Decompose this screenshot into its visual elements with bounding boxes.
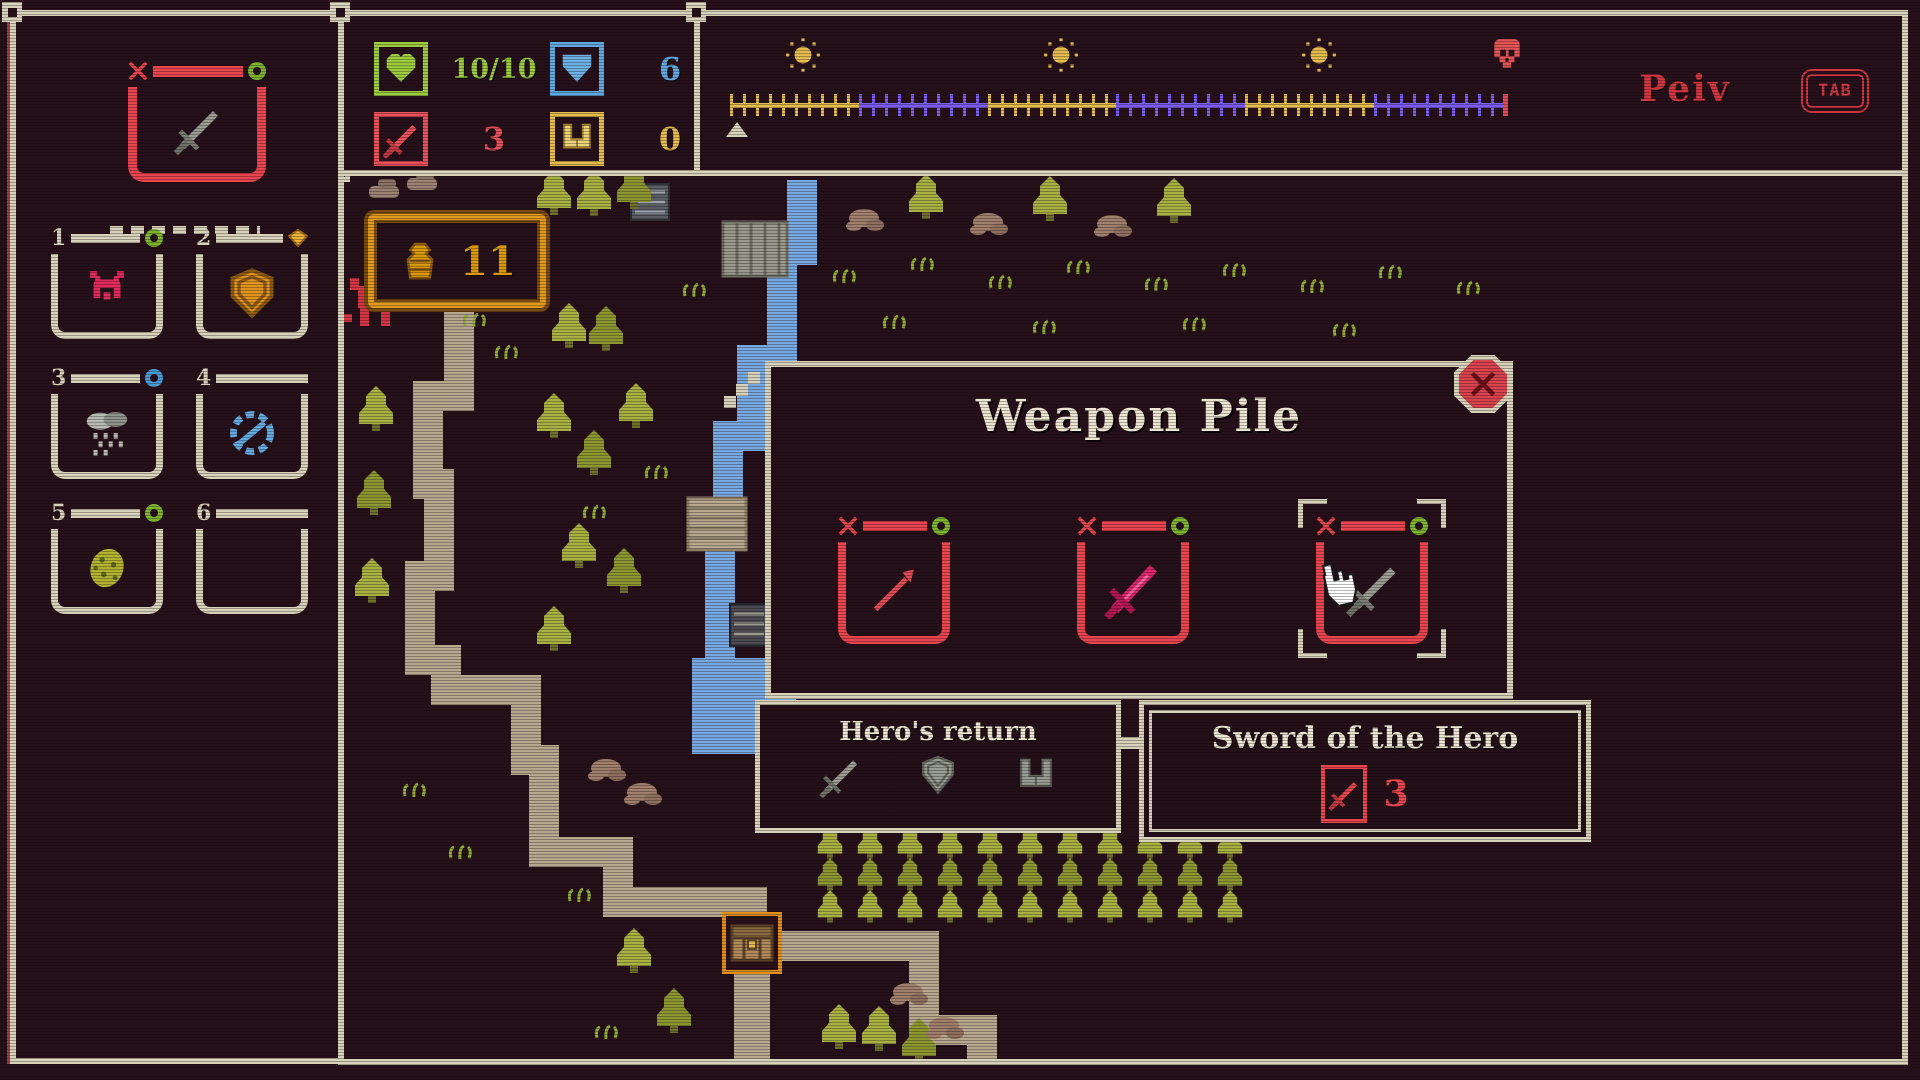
slot-number: 4	[196, 367, 211, 389]
tree-icon	[1058, 858, 1082, 890]
grey-sword-icon	[169, 102, 225, 158]
upgrade-ring-badge	[932, 517, 950, 535]
tree-icon	[1218, 858, 1242, 890]
chest-icon	[730, 922, 774, 964]
tree-icon	[1178, 890, 1202, 922]
boots-icon	[1013, 753, 1059, 803]
dock	[723, 222, 787, 276]
inventory-slot-5[interactable]: 5	[51, 502, 163, 614]
tree-icon	[357, 470, 391, 515]
dialog-corner-deco	[736, 384, 748, 396]
mushroom-icon	[970, 213, 1008, 235]
grass-icon	[1302, 280, 1322, 293]
timeline-position-marker	[726, 122, 748, 137]
slot-number: 3	[51, 367, 66, 389]
slot-bar	[71, 234, 140, 243]
shield-icon	[550, 42, 604, 96]
shield-icon	[915, 753, 961, 803]
tree-icon	[1178, 858, 1202, 890]
attack-stat-value: 3	[1383, 773, 1408, 815]
grass-icon	[1334, 324, 1354, 337]
tree-icon	[822, 1004, 856, 1049]
timeline-segment-day	[730, 94, 859, 116]
mushroom-icon	[588, 759, 626, 781]
mushroom-icon	[1094, 215, 1132, 237]
grass-icon	[646, 466, 666, 479]
slot-number: 5	[51, 502, 66, 524]
tree-icon	[858, 890, 882, 922]
tree-icon	[619, 383, 653, 428]
tree-icon	[1138, 858, 1162, 890]
upgrade-ring-badge	[145, 229, 163, 247]
stat-health: 10/10	[374, 42, 550, 96]
tree-icon	[1018, 890, 1042, 922]
player-name: Peiv	[1605, 68, 1765, 110]
attack-value: 3	[438, 120, 550, 158]
timeline-segment-night	[1374, 94, 1503, 116]
tree-icon	[938, 858, 962, 890]
stat-attack: 3	[374, 112, 550, 166]
timeline-end-tick	[1503, 94, 1508, 116]
dialog-corner-deco	[748, 372, 760, 384]
tree-icon	[562, 523, 596, 568]
slot-bar	[1102, 521, 1166, 531]
gem-badge-icon	[288, 229, 308, 247]
tree-icon	[577, 430, 611, 475]
sword-icon	[1321, 765, 1367, 823]
timeline-segment-night	[859, 94, 988, 116]
tree-icon	[355, 558, 389, 603]
money-bag-icon	[398, 239, 442, 283]
inventory-slot-2[interactable]: 2	[196, 227, 308, 339]
tree-icon	[359, 386, 393, 431]
tree-icon	[978, 890, 1002, 922]
treasure-chest[interactable]	[722, 912, 782, 974]
grass-icon	[1068, 261, 1088, 274]
slot-bar	[216, 234, 283, 243]
tooltip-sword-of-the-hero: Sword of the Hero 3	[1139, 700, 1591, 842]
tab-key-hint[interactable]: TAB	[1806, 74, 1864, 108]
tree-icon	[938, 890, 962, 922]
equipped-weapon-slot[interactable]	[128, 60, 266, 182]
inventory-slot-1[interactable]: 1	[51, 227, 163, 339]
upgrade-ring-badge	[248, 62, 266, 80]
tree-icon	[1033, 176, 1067, 221]
weapon-pile-slot-1[interactable]	[838, 515, 950, 644]
horned-helmet-icon	[80, 266, 134, 320]
tree-icon	[607, 548, 641, 593]
grass-icon	[1458, 282, 1478, 295]
tooltip-title: Hero's return	[760, 717, 1116, 747]
gold-count: 11	[460, 238, 516, 285]
rock-icon	[369, 179, 399, 198]
inventory-slot-3[interactable]: 3	[51, 367, 163, 479]
tree-icon	[537, 606, 571, 651]
empty-slot	[196, 529, 308, 614]
crossed-swords-icon	[1077, 516, 1097, 536]
boots-icon	[550, 112, 604, 166]
red-spear-icon	[865, 560, 923, 618]
moon-icon	[1171, 36, 1209, 74]
stairs	[688, 498, 746, 550]
grass-icon	[496, 346, 516, 359]
upgrade-ring-badge	[145, 504, 163, 522]
mushroom-icon	[624, 783, 662, 805]
tooltip-title: Sword of the Hero	[1144, 721, 1586, 756]
tree-icon	[1058, 890, 1082, 922]
grass-icon	[584, 506, 604, 519]
tooltip-heros-return: Hero's return	[755, 700, 1121, 833]
equipment-icon-row	[760, 753, 1116, 803]
tree-icon	[589, 306, 623, 351]
crossed-swords-icon	[128, 61, 148, 81]
stats-panel: 10/10 6 3 0	[338, 10, 700, 176]
crossed-swords-icon	[838, 516, 858, 536]
timeline-segment-day	[988, 94, 1117, 116]
dialog-title: Weapon Pile	[771, 391, 1507, 442]
timeline-segment-day	[1245, 94, 1374, 116]
tree-icon	[909, 176, 943, 219]
tree-icon	[617, 928, 651, 973]
upgrade-ring-badge	[1171, 517, 1189, 535]
tree-icon	[1018, 858, 1042, 890]
tree-icon	[577, 176, 611, 216]
slot-number: 2	[196, 227, 211, 249]
grass-icon	[450, 846, 470, 859]
signpost	[730, 604, 768, 646]
grass-icon	[834, 270, 854, 283]
tree-icon	[1098, 858, 1122, 890]
inventory-slot-4[interactable]: 4	[196, 367, 308, 479]
inventory-slot-6[interactable]: 6	[196, 502, 308, 614]
slot-bar	[71, 509, 140, 518]
grass-icon	[404, 784, 424, 797]
tree-icon	[1098, 890, 1122, 922]
tree-icon	[862, 1006, 896, 1051]
sidebar-panel: 1 2	[10, 10, 344, 1064]
tree-icon	[978, 858, 1002, 890]
timeline-segment-night	[1116, 94, 1245, 116]
tree-icon	[858, 858, 882, 890]
sword-icon	[817, 753, 863, 803]
compass-icon	[225, 406, 279, 460]
grass-icon	[596, 1026, 616, 1039]
weapon-pile-dialog: Weapon Pile	[765, 361, 1513, 699]
slot-number: 6	[196, 502, 211, 524]
tree-icon	[1157, 178, 1191, 223]
timeline-panel: Peiv TAB	[694, 10, 1908, 176]
grass-icon	[912, 258, 932, 271]
grass-icon	[684, 284, 704, 297]
sun-icon	[1300, 36, 1338, 74]
slot-bar	[216, 374, 308, 383]
slot-bar	[1341, 521, 1405, 531]
tree-icon	[657, 988, 691, 1033]
slot-bar	[71, 374, 140, 383]
slot-bar	[863, 521, 927, 531]
grass-icon	[1146, 278, 1166, 291]
game-screen: 11	[0, 0, 1920, 1080]
close-icon	[1459, 360, 1507, 408]
grass-icon	[1034, 321, 1054, 334]
grass-icon	[990, 276, 1010, 289]
grass-icon	[884, 316, 904, 329]
sword-icon	[374, 112, 428, 166]
tree-icon	[818, 890, 842, 922]
tree-icon	[898, 890, 922, 922]
grass-icon	[569, 889, 589, 902]
tree-icon	[552, 303, 586, 348]
tree-icon	[1138, 890, 1162, 922]
grass-icon	[1380, 266, 1400, 279]
tree-icon	[818, 858, 842, 890]
dialog-corner-deco	[724, 396, 736, 408]
slot-bar	[216, 509, 308, 518]
beetle-icon	[81, 542, 133, 594]
grass-icon	[1184, 318, 1204, 331]
health-value: 10/10	[438, 54, 550, 85]
skull-icon	[1488, 36, 1526, 74]
upgrade-ring-badge	[145, 369, 163, 387]
mushroom-icon	[846, 209, 884, 231]
slot-number: 1	[51, 227, 66, 249]
sun-icon	[1042, 36, 1080, 74]
sun-icon	[784, 36, 822, 74]
rain-cloud-icon	[79, 406, 135, 460]
moon-icon	[913, 36, 951, 74]
tree-icon	[898, 858, 922, 890]
moon-icon	[1429, 36, 1467, 74]
timeline-bar	[730, 94, 1508, 116]
pink-sword-icon	[1103, 559, 1163, 619]
orange-shield-icon	[226, 266, 278, 320]
tree-icon	[1218, 890, 1242, 922]
slot-bar	[153, 66, 243, 77]
grass-icon	[1224, 264, 1244, 277]
gold-counter: 11	[368, 214, 546, 308]
rock-icon	[407, 176, 437, 190]
tree-icon	[537, 393, 571, 438]
tree-icon	[537, 176, 571, 215]
heart-icon	[374, 42, 428, 96]
tooltip-connector	[1121, 737, 1139, 749]
weapon-pile-slot-2[interactable]	[1077, 515, 1189, 644]
hand-cursor	[1311, 556, 1369, 617]
